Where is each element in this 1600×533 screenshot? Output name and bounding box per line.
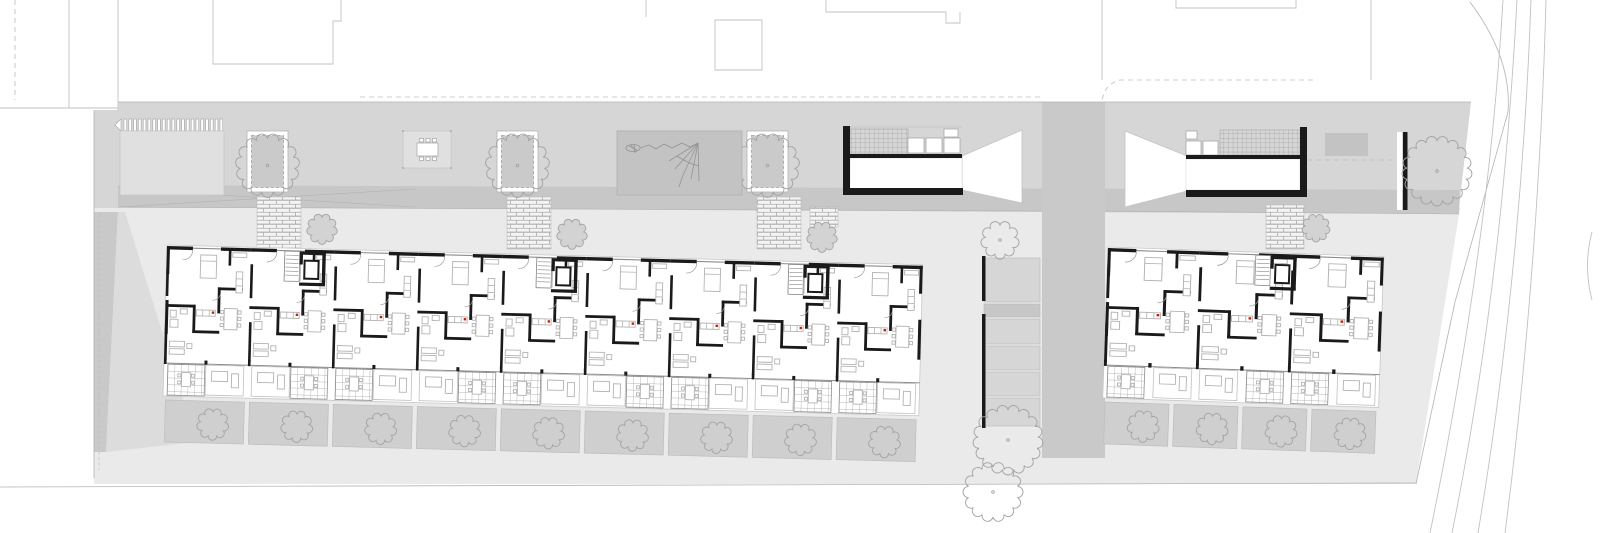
brick-entry-path (757, 197, 801, 249)
garden-room (205, 365, 244, 396)
terrace (335, 368, 373, 400)
strip-step (984, 304, 1040, 317)
curb-arc (1588, 232, 1593, 300)
east-building (1101, 247, 1384, 454)
garden-room (755, 379, 794, 410)
terrace (839, 382, 877, 414)
strip-garden-band (984, 398, 1040, 426)
strip-wall (982, 314, 986, 428)
strip-garden-band (984, 346, 1040, 370)
garden-room (709, 378, 748, 409)
garden-room (1153, 368, 1192, 399)
wall-shadow (1397, 132, 1402, 210)
lane-line (1478, 0, 1531, 533)
terrace (503, 373, 541, 405)
central-road (1042, 102, 1105, 458)
strip-garden-band (984, 319, 1040, 344)
play-area (617, 131, 742, 195)
brick-entry-path (507, 197, 551, 249)
terrace (167, 364, 205, 396)
garden-room (587, 375, 626, 406)
ramp-room (1186, 159, 1300, 190)
strip-garden-band (984, 372, 1040, 396)
terrace (1246, 371, 1284, 403)
freestanding-wall (1403, 132, 1408, 210)
garden-room (419, 371, 458, 402)
bike-parking-grid (1220, 130, 1300, 155)
garden-room (1337, 374, 1376, 405)
strip-wall (982, 256, 986, 301)
garden-room (877, 383, 916, 414)
brick-entry-path (1266, 205, 1304, 249)
ramp-room (850, 158, 962, 189)
terrace (458, 372, 496, 404)
lane-line (1452, 0, 1517, 533)
lane-line (1505, 0, 1546, 533)
terrace (1291, 372, 1329, 404)
garden-room (251, 366, 290, 397)
terrace (794, 380, 832, 412)
bike-parking-grid (850, 129, 908, 154)
paved-panel (120, 131, 224, 195)
site-plan-page (0, 0, 1600, 533)
garden-room (373, 369, 412, 400)
tree-trunk-dot (992, 491, 995, 494)
property-line (1102, 80, 1313, 102)
context-buildings (0, 0, 1371, 110)
terrace (626, 376, 664, 408)
site-plan-canvas (0, 0, 1600, 533)
garden-room (541, 374, 580, 405)
apartment-buildings (162, 245, 1384, 462)
garden-room (1199, 369, 1238, 400)
terrace (671, 377, 709, 409)
picnic-table (402, 130, 452, 169)
bike-racks (115, 119, 223, 131)
west-building (162, 245, 923, 462)
strip-garden-band (984, 258, 1040, 302)
terrace (1107, 366, 1145, 398)
paved-pad (1325, 133, 1368, 156)
brick-entry-path (257, 197, 301, 249)
terrace (290, 367, 328, 399)
